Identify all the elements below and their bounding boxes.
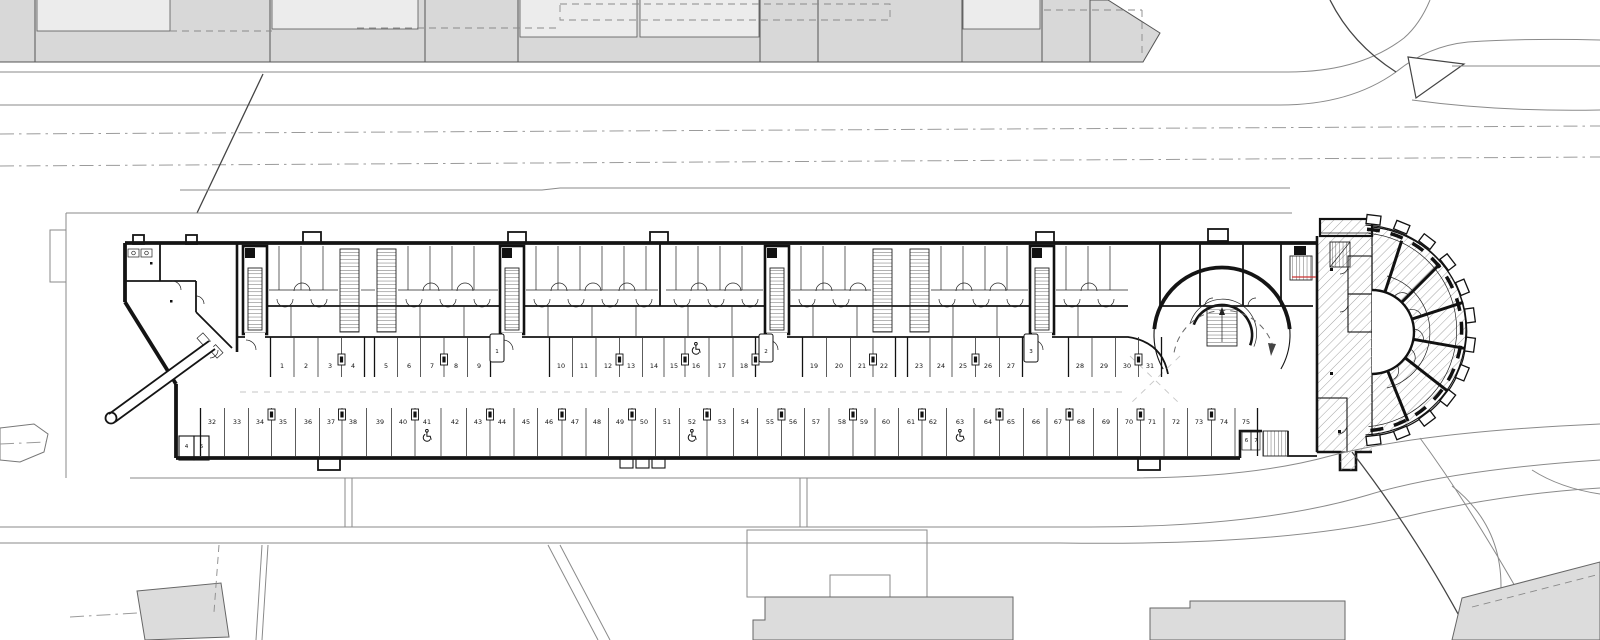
core-stair-flight	[248, 268, 262, 330]
parking-stall-number: 12	[604, 362, 612, 370]
core-door-gap	[245, 333, 265, 340]
parking-stall-number: 2	[304, 362, 308, 370]
context-slab-b	[1150, 601, 1345, 640]
parking-stall-number: 29	[1100, 362, 1108, 370]
floor-plan-page: 1234567891011121314151617181920212223242…	[0, 0, 1600, 640]
bay-number: 1	[495, 349, 499, 355]
parking-stall-number: 48	[593, 418, 601, 426]
parking-stall-number: 66	[1032, 418, 1040, 426]
column-marker-core	[974, 357, 977, 363]
parking-stall-number: 5	[384, 362, 388, 370]
column-marker-core	[998, 412, 1001, 418]
parking-stall-number: 24	[937, 362, 945, 370]
parking-stall-number: 21	[858, 362, 866, 370]
parking-stall-number: 9	[477, 362, 481, 370]
parking-stall-number: 26	[984, 362, 992, 370]
parking-stall-number: 59	[860, 418, 868, 426]
core-door-gap	[502, 333, 522, 340]
traffic-island-left	[0, 424, 48, 462]
hall-hatched-floor	[1317, 236, 1372, 452]
parking-stall-number: 63	[956, 418, 964, 426]
context-tilted-building	[137, 583, 229, 640]
facade-window-box	[1366, 435, 1381, 446]
bay-cell	[1024, 334, 1038, 362]
column-marker-core	[705, 412, 708, 418]
parking-stall-number: 25	[959, 362, 967, 370]
parking-stall-number: 62	[929, 418, 937, 426]
parking-stall-number: 39	[376, 418, 384, 426]
core-vent	[502, 248, 512, 258]
parking-stall-number: 61	[907, 418, 915, 426]
column-marker-core	[1137, 357, 1140, 363]
parking-stall-number: 71	[1148, 418, 1156, 426]
facade-window-box	[1366, 215, 1381, 226]
parking-stall-number: 19	[810, 362, 818, 370]
parking-stall-number: 52	[688, 418, 696, 426]
context-slab-a	[753, 597, 1013, 640]
parking-stall-number: 33	[233, 418, 241, 426]
parking-stall-number: 65	[1007, 418, 1015, 426]
bay-cell	[490, 334, 504, 362]
column-marker-core	[618, 357, 621, 363]
parking-stall-number: 74	[1220, 418, 1228, 426]
curb-diagonal	[197, 74, 263, 213]
parking-stall-number: 31	[1146, 362, 1154, 370]
parking-stall-number: 69	[1102, 418, 1110, 426]
parking-stall-number: 35	[279, 418, 287, 426]
parking-stall-number: 6	[407, 362, 411, 370]
parking-stall-number: 17	[718, 362, 726, 370]
core-stair-flight	[505, 268, 519, 330]
parking-stall-number: 44	[498, 418, 506, 426]
parking-stall-number: 3	[328, 362, 332, 370]
parking-stall-number: 57	[812, 418, 820, 426]
traffic-island-top	[1408, 57, 1464, 98]
entry-lobby	[1320, 219, 1372, 236]
parking-stall-number: 47	[571, 418, 579, 426]
parking-stall-number: 56	[789, 418, 797, 426]
context-buildings-bottom	[70, 530, 1600, 640]
end-bay-number: 7	[1254, 438, 1258, 444]
parking-stall-number: 34	[256, 418, 264, 426]
parking-stall-number: 50	[640, 418, 648, 426]
context-wedge-br	[1452, 562, 1600, 640]
parking-stall-number: 46	[545, 418, 553, 426]
parking-stall-number: 70	[1125, 418, 1133, 426]
core-vent	[245, 248, 255, 258]
building: 1234567891011121314151617181920212223242…	[106, 215, 1476, 470]
parking-stall-number: 58	[838, 418, 846, 426]
column-marker-core	[1068, 412, 1071, 418]
parking-stall-number: 60	[882, 418, 890, 426]
parking-stall-number: 45	[522, 418, 530, 426]
parking-stall-number: 1	[280, 362, 284, 370]
parking-stall-number: 7	[430, 362, 434, 370]
column-marker-core	[340, 357, 343, 363]
parking-stall-number: 37	[327, 418, 335, 426]
column-marker-core	[413, 412, 416, 418]
column-marker-core	[851, 412, 854, 418]
bay-cell	[759, 334, 773, 362]
core-vent	[767, 248, 777, 258]
column-marker-core	[630, 412, 633, 418]
column-marker-core	[754, 357, 757, 363]
road-centerline-1	[0, 126, 1600, 134]
end-bay-number: 6	[1245, 438, 1249, 444]
parking-stall-number: 64	[984, 418, 992, 426]
parking-stall-number: 51	[663, 418, 671, 426]
column-marker-core	[1210, 412, 1213, 418]
parking-stall-number: 23	[915, 362, 923, 370]
parking-stall-number: 14	[650, 362, 658, 370]
street-left	[0, 213, 66, 478]
parking-stall-number: 43	[474, 418, 482, 426]
column-marker-core	[270, 412, 273, 418]
courtyard-building-outline	[747, 530, 927, 597]
column-marker-core	[780, 412, 783, 418]
road-centerline-2	[0, 157, 1600, 166]
parking-stall-number: 8	[454, 362, 458, 370]
vent-shaft	[1294, 246, 1306, 255]
parking-stall-number: 40	[399, 418, 407, 426]
parking-stall-number: 28	[1076, 362, 1084, 370]
parking-stall-number: 20	[835, 362, 843, 370]
column-marker-core	[488, 412, 491, 418]
facade-window-box	[1465, 308, 1476, 323]
parking-stall-number: 75	[1242, 418, 1250, 426]
parking-stall-number: 54	[741, 418, 749, 426]
column-marker-core	[1139, 412, 1142, 418]
parking-stall-number: 16	[692, 362, 700, 370]
parking-stall-number: 68	[1077, 418, 1085, 426]
core-stair-flight	[770, 268, 784, 330]
floor-plan-drawing: 1234567891011121314151617181920212223242…	[0, 0, 1600, 640]
parking-stall-number: 10	[557, 362, 565, 370]
parking-stall-number: 55	[766, 418, 774, 426]
parking-stall-number: 27	[1007, 362, 1015, 370]
parking-stall-number: 42	[451, 418, 459, 426]
context-buildings-top	[0, 0, 1160, 62]
parking-stall-number: 22	[880, 362, 888, 370]
facade-window-box	[1465, 337, 1476, 352]
parking-stall-number: 67	[1054, 418, 1062, 426]
column-marker-core	[340, 412, 343, 418]
parking-stall-number: 49	[616, 418, 624, 426]
parking-stall-number: 4	[351, 362, 355, 370]
parking-stall-number: 36	[304, 418, 312, 426]
parking-stall-number: 73	[1195, 418, 1203, 426]
parking-stall-number: 53	[718, 418, 726, 426]
column-marker-core	[442, 357, 445, 363]
parking-stall-number: 32	[208, 418, 216, 426]
bay-number: 3	[1029, 349, 1033, 355]
parking-stall-number: 11	[580, 362, 588, 370]
column-marker-core	[560, 412, 563, 418]
parking-stall-number: 41	[423, 418, 431, 426]
core-stair-flight	[1035, 268, 1049, 330]
parking-stall-number: 15	[670, 362, 678, 370]
core-vent	[1032, 248, 1042, 258]
column-marker-core	[683, 357, 686, 363]
end-bay-number: 5	[200, 444, 204, 450]
parking-stall-number: 13	[627, 362, 635, 370]
column-marker-core	[871, 357, 874, 363]
end-bay-number: 4	[185, 444, 189, 450]
parking-stall-number: 30	[1123, 362, 1131, 370]
column-marker-core	[920, 412, 923, 418]
parking-stall-number: 38	[349, 418, 357, 426]
bay-number: 2	[764, 349, 768, 355]
parking-stall-number: 72	[1172, 418, 1180, 426]
parking-stall-number: 18	[740, 362, 748, 370]
